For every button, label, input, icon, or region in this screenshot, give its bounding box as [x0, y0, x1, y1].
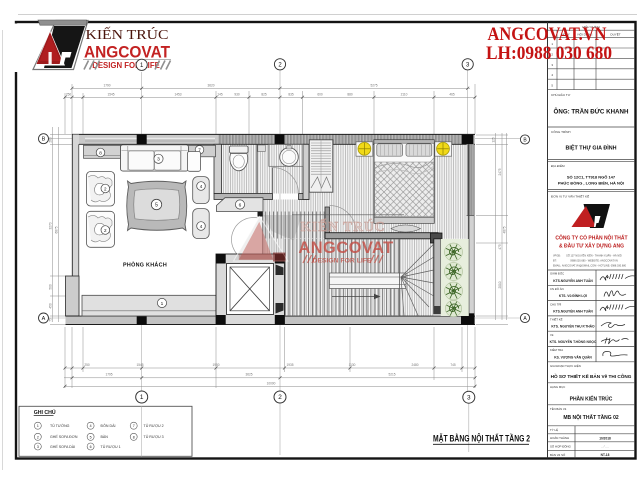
svg-text:GHI CHÚ: GHI CHÚ — [34, 409, 56, 416]
svg-text:GHẾ SOFA DÀI: GHẾ SOFA DÀI — [50, 444, 75, 449]
svg-text:3: 3 — [157, 157, 160, 163]
svg-text:DESIGN FOR LIFE: DESIGN FOR LIFE — [313, 258, 372, 265]
svg-text:LH:0988 030 680: LH:0988 030 680 — [486, 44, 612, 64]
svg-text:SỐ 137 NGUYỄN XIỂN - THANH XUÂ: SỐ 137 NGUYỄN XIỂN - THANH XUÂN - HÀ NỘI — [566, 255, 622, 258]
svg-text:TỦ RƯỢU 1: TỦ RƯỢU 1 — [101, 444, 121, 449]
svg-text:8: 8 — [99, 150, 102, 155]
svg-text:450: 450 — [49, 303, 53, 309]
svg-text:1790: 1790 — [103, 84, 110, 88]
svg-text:ĐỊA ĐIỂM: ĐỊA ĐIỂM — [551, 163, 565, 168]
svg-text:1130: 1130 — [349, 363, 356, 367]
svg-text:VPGĐ:: VPGĐ: — [553, 255, 561, 258]
svg-text:TỦ RƯỢU 3: TỦ RƯỢU 3 — [144, 434, 164, 439]
svg-text:1453: 1453 — [174, 93, 181, 97]
svg-text:KTS. Vũ ĐÌNH LỢI: KTS. Vũ ĐÌNH LỢI — [559, 293, 587, 298]
svg-text:4: 4 — [200, 224, 203, 229]
svg-text:DUYỆT: DUYỆT — [610, 31, 620, 36]
svg-text:8: 8 — [133, 435, 135, 439]
svg-text:HẠNG MỤC: HẠNG MỤC — [550, 385, 565, 389]
svg-text:10000: 10000 — [267, 381, 276, 385]
svg-text:280: 280 — [49, 137, 53, 143]
svg-text:DESIGN FOR LIFE: DESIGN FOR LIFE — [92, 61, 160, 70]
svg-text:2: 2 — [278, 394, 282, 401]
svg-text:TÊN BẢN Vẽ: TÊN BẢN Vẽ — [550, 406, 567, 411]
svg-text:BẢN Vẽ SỐ: BẢN Vẽ SỐ — [550, 452, 566, 457]
svg-text:250: 250 — [66, 93, 72, 97]
svg-text:4875: 4875 — [503, 226, 507, 233]
svg-text:CHỦ ĐẦU TƯ: CHỦ ĐẦU TƯ — [551, 92, 571, 97]
svg-text:KTS.NGUYỄN ANH TUẤN: KTS.NGUYỄN ANH TUẤN — [553, 278, 593, 283]
svg-text:KIẾN TRÚC: KIẾN TRÚC — [301, 219, 386, 234]
svg-text:MB NỘI THẤT TẦNG 02: MB NỘI THẤT TẦNG 02 — [563, 413, 618, 421]
svg-text:5: 5 — [90, 435, 92, 439]
svg-text:5: 5 — [155, 203, 158, 209]
svg-text:NT-18: NT-18 — [601, 453, 610, 457]
svg-text:600: 600 — [317, 93, 323, 97]
svg-text:1: 1 — [161, 301, 164, 307]
svg-text:6: 6 — [90, 445, 92, 449]
svg-text:2475: 2475 — [498, 168, 502, 175]
svg-text:BÀN: BÀN — [101, 435, 109, 439]
svg-text:.. / ....: .. / .... — [601, 445, 609, 449]
svg-text:5215: 5215 — [388, 373, 395, 377]
svg-text:CÔNG TY CỔ PHẦN NỘI THẤT: CÔNG TY CỔ PHẦN NỘI THẤT — [555, 234, 627, 242]
svg-text:250: 250 — [84, 363, 90, 367]
svg-text:KTS.NGUYỄN ANH TUẤN: KTS.NGUYỄN ANH TUẤN — [553, 308, 593, 313]
svg-text:3: 3 — [37, 445, 39, 449]
svg-text:1: 1 — [37, 424, 39, 428]
svg-text:TỦ RƯỢU 2: TỦ RƯỢU 2 — [144, 423, 164, 428]
svg-text:145: 145 — [217, 93, 223, 97]
svg-text:ANGCOVAT.VN: ANGCOVAT.VN — [488, 25, 608, 45]
svg-text:THIẾT KẾ: THIẾT KẾ — [550, 317, 563, 322]
svg-text:& ĐẦU TƯ XÂY DỰNG ANG: & ĐẦU TƯ XÂY DỰNG ANG — [559, 243, 624, 250]
svg-text:TỶ LỆ: TỶ LỆ — [550, 427, 558, 432]
svg-text:KIẾN TRÚC: KIẾN TRÚC — [86, 27, 169, 42]
svg-text:1795: 1795 — [105, 373, 112, 377]
svg-text:PHÚC ĐỒNG , LONG BIÊN, HÀ NỘI: PHÚC ĐỒNG , LONG BIÊN, HÀ NỘI — [558, 180, 624, 185]
svg-text:1950: 1950 — [212, 363, 219, 367]
svg-text:2110: 2110 — [401, 93, 408, 97]
svg-text:6: 6 — [239, 202, 242, 208]
svg-text:ĐÔN DÀI: ĐÔN DÀI — [101, 423, 116, 428]
svg-text:930: 930 — [234, 93, 240, 97]
svg-text:835: 835 — [288, 93, 294, 97]
svg-text:1545: 1545 — [136, 363, 143, 367]
svg-text:PHÒNG KHÁCH: PHÒNG KHÁCH — [123, 261, 167, 269]
svg-text:HOÀN THÀNH: HOÀN THÀNH — [550, 436, 569, 440]
svg-text:SỐ 12C1, TT918 NGÕ 147: SỐ 12C1, TT918 NGÕ 147 — [567, 174, 616, 179]
svg-text:Vẽ: Vẽ — [550, 333, 554, 337]
svg-text:2010: 2010 — [498, 281, 502, 288]
svg-text:1: 1 — [140, 394, 144, 401]
svg-text:3: 3 — [467, 394, 471, 401]
svg-text:7: 7 — [133, 424, 135, 428]
svg-text:HỒ SƠ THIẾT KẾ BẢN Vẽ THI CÔNG: HỒ SƠ THIẾT KẾ BẢN Vẽ THI CÔNG — [551, 372, 632, 379]
svg-text:465: 465 — [449, 93, 455, 97]
svg-text:75: 75 — [49, 318, 53, 322]
svg-text:MẶT BẰNG NỘI THẤT TẦNG 2: MẶT BẰNG NỘI THẤT TẦNG 2 — [433, 433, 530, 444]
svg-text:SỐ HỢP ĐỒNG: SỐ HỢP ĐỒNG — [550, 444, 572, 449]
svg-text:TỦ TƯỜNG: TỦ TƯỜNG — [50, 423, 70, 428]
svg-text:CÔNG TRÌNH: CÔNG TRÌNH — [551, 129, 571, 134]
svg-text:ĐT:: ĐT: — [553, 260, 557, 263]
svg-text:1935: 1935 — [286, 363, 293, 367]
svg-text:GIÁM ĐỐC: GIÁM ĐỐC — [550, 271, 564, 276]
svg-text:ÔNG: TRẦN ĐỨC KHANH: ÔNG: TRẦN ĐỨC KHANH — [554, 108, 629, 116]
svg-text:2: 2 — [104, 186, 107, 191]
svg-text:4: 4 — [200, 184, 203, 189]
svg-text:GHẾ SOFA ĐƠN: GHẾ SOFA ĐƠN — [50, 434, 78, 439]
svg-text:0988.030.680 - WEBSITE: ANGCOV: 0988.030.680 - WEBSITE: ANGCOVAT.VN — [570, 260, 618, 263]
svg-text:6875: 6875 — [55, 226, 59, 233]
svg-text:10/2018: 10/2018 — [599, 436, 611, 440]
svg-text:745: 745 — [450, 363, 456, 367]
svg-text:KTS. NGUYỄN THU P.THẢO: KTS. NGUYỄN THU P.THẢO — [551, 324, 595, 329]
svg-text:2: 2 — [37, 435, 39, 439]
svg-text:CN ĐỒ ÁN: CN ĐỒ ÁN — [550, 286, 564, 291]
svg-text:ANGCOVAT.VN@GMAIL.COM - HOTLIN: ANGCOVAT.VN@GMAIL.COM - HOTLINE: 0988.03… — [562, 265, 627, 268]
svg-text:GIAI ĐOẠN THỰC HIỆN: GIAI ĐOẠN THỰC HIỆN — [550, 363, 581, 368]
svg-text:3625: 3625 — [245, 373, 252, 377]
svg-text:A: A — [42, 316, 46, 322]
svg-text:880: 880 — [347, 93, 353, 97]
svg-text:ĐƠN VỊ TƯ VẤN THIẾT KẾ: ĐƠN VỊ TƯ VẤN THIẾT KẾ — [551, 194, 589, 199]
svg-text:1545: 1545 — [107, 93, 114, 97]
svg-text:KIỂM TRA: KIỂM TRA — [550, 347, 563, 352]
svg-text:EMAIL:: EMAIL: — [553, 265, 562, 268]
svg-text:500: 500 — [49, 284, 53, 290]
svg-text:2480: 2480 — [411, 363, 418, 367]
svg-text:475: 475 — [498, 244, 502, 250]
svg-text:3620: 3620 — [207, 84, 214, 88]
svg-text:ANGCOVAT: ANGCOVAT — [298, 239, 393, 257]
svg-text:ANGCOVAT: ANGCOVAT — [84, 43, 171, 62]
svg-text:B: B — [42, 137, 46, 143]
svg-text:CHỦ TRÌ: CHỦ TRÌ — [550, 301, 562, 306]
svg-text:125: 125 — [492, 137, 496, 143]
svg-text:2: 2 — [104, 228, 107, 233]
svg-text:PHẦN KIẾN TRÚC: PHẦN KIẾN TRÚC — [570, 396, 613, 403]
svg-text:3270: 3270 — [49, 222, 53, 229]
svg-text:4: 4 — [90, 424, 92, 428]
svg-text:KS. VƯỢNG VĂN QUÂN: KS. VƯỢNG VĂN QUÂN — [554, 354, 592, 359]
svg-text:BIỆT THỰ GIA ĐÌNH: BIỆT THỰ GIA ĐÌNH — [566, 144, 617, 152]
svg-text:825: 825 — [261, 93, 267, 97]
svg-text:KTS. NGUYỄN T.HỒNG NGỌC: KTS. NGUYỄN T.HỒNG NGỌC — [550, 339, 597, 344]
svg-text:5275: 5275 — [370, 84, 377, 88]
